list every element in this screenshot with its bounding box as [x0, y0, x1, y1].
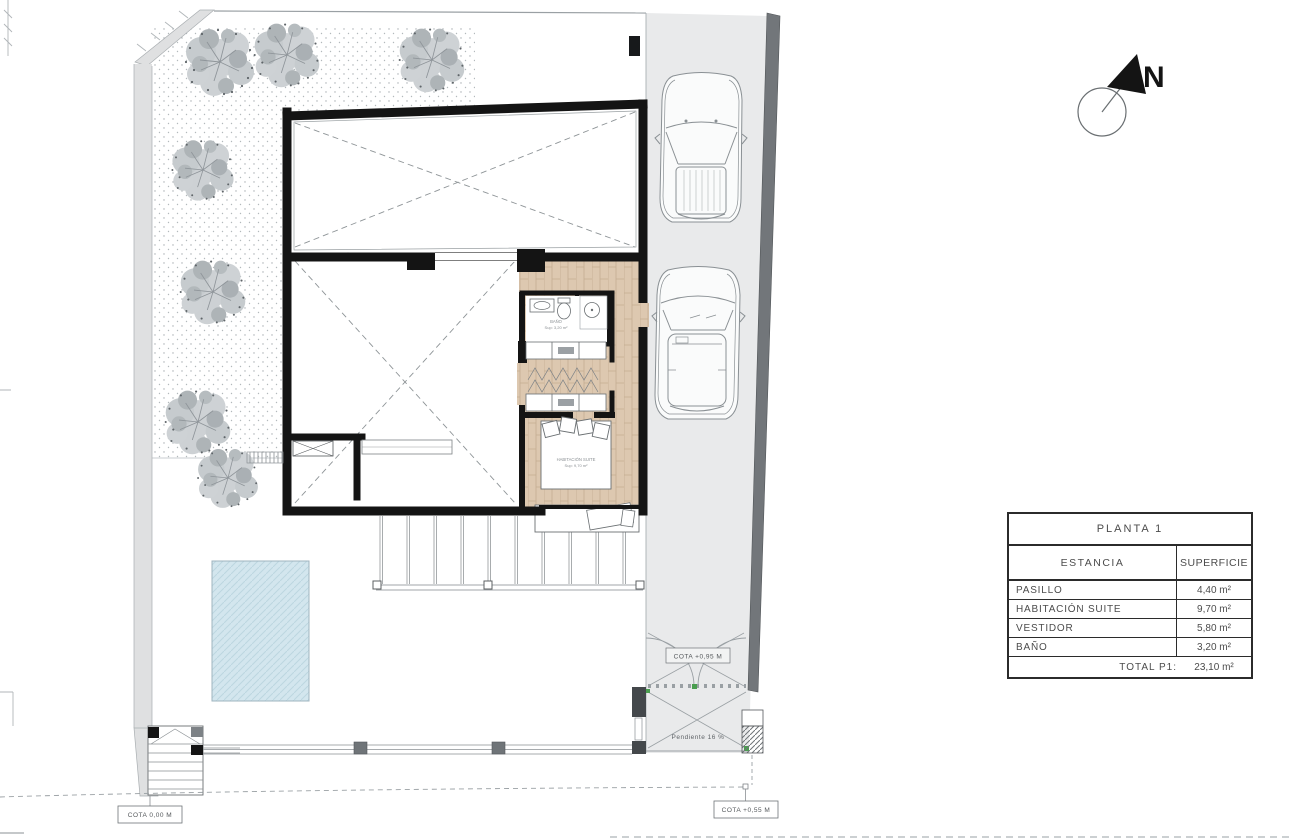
pillow [559, 417, 576, 433]
bathroom: BAÑO Sup: 3,20 m² [526, 296, 607, 342]
north-arrow-icon [1107, 54, 1146, 94]
pillow [576, 419, 593, 435]
site-plan-drawing: COTA +0,95 M Pendiente 16 % [0, 0, 1290, 840]
gate-pillar [632, 741, 646, 754]
level-marker [646, 689, 650, 693]
table-row: BAÑO 3,20 m² [1009, 638, 1251, 657]
bed: HABITACIÓN SUITE Sup: 9,70 m² [541, 417, 611, 489]
total-label: TOTAL P1: [1009, 662, 1177, 673]
col-header-room: ESTANCIA [1009, 546, 1176, 579]
table-title: PLANTA 1 [1009, 514, 1251, 546]
terrace-fence [203, 742, 632, 754]
pillow [592, 423, 610, 440]
room-name: BAÑO [1009, 638, 1176, 656]
area-table: PLANTA 1 ESTANCIA SUPERFICIE PASILLO 4,4… [1007, 512, 1253, 679]
upper-void-room [291, 108, 639, 253]
floor-plan-page: COTA +0,95 M Pendiente 16 % [0, 0, 1290, 840]
toilet [558, 303, 571, 319]
room-area: 3,20 m² [1176, 638, 1251, 656]
gate-pillar-hatched [742, 726, 763, 753]
compass-north: N [1078, 54, 1165, 136]
col-header-area: SUPERFICIE [1176, 546, 1251, 579]
bath-label: BAÑO [550, 319, 563, 324]
suite-label: HABITACIÓN SUITE [557, 457, 596, 462]
table-row: HABITACIÓN SUITE 9,70 m² [1009, 600, 1251, 619]
cota-ground-label: COTA 0,00 M [128, 812, 172, 819]
bath-area-label: Sup: 3,20 m² [545, 325, 569, 330]
room-name: HABITACIÓN SUITE [1009, 600, 1176, 618]
table-row: PASILLO 4,40 m² [1009, 581, 1251, 600]
table-row: VESTIDOR 5,80 m² [1009, 619, 1251, 638]
suite-area-label: Sup: 9,70 m² [565, 463, 589, 468]
building: BAÑO Sup: 3,20 m² HABITACIÓN SUITE Sup: [247, 104, 649, 534]
table-total-row: TOTAL P1: 23,10 m² [1009, 657, 1251, 677]
cota-street-label: COTA +0,55 M [722, 807, 771, 814]
room-area: 5,80 m² [1176, 619, 1251, 637]
room-area: 4,40 m² [1176, 581, 1251, 599]
slope-label: Pendiente 16 % [672, 734, 725, 741]
fence-post [492, 742, 505, 754]
table-header-row: ESTANCIA SUPERFICIE [1009, 546, 1251, 581]
swimming-pool [212, 561, 309, 701]
north-label: N [1143, 61, 1165, 94]
gate-pillar [632, 687, 646, 717]
level-marker [692, 684, 697, 689]
pillow [542, 420, 560, 437]
entry-step [247, 452, 283, 463]
room-name: VESTIDOR [1009, 619, 1176, 637]
exterior-stairs [148, 726, 240, 795]
room-name: PASILLO [1009, 581, 1176, 599]
fence-post [354, 742, 367, 754]
sink [530, 299, 554, 312]
total-area: 23,10 m² [1177, 662, 1251, 673]
car-2 [652, 267, 745, 420]
room-area: 9,70 m² [1176, 600, 1251, 618]
car-1 [655, 73, 747, 223]
cota-gate-label: COTA +0,95 M [674, 654, 723, 661]
